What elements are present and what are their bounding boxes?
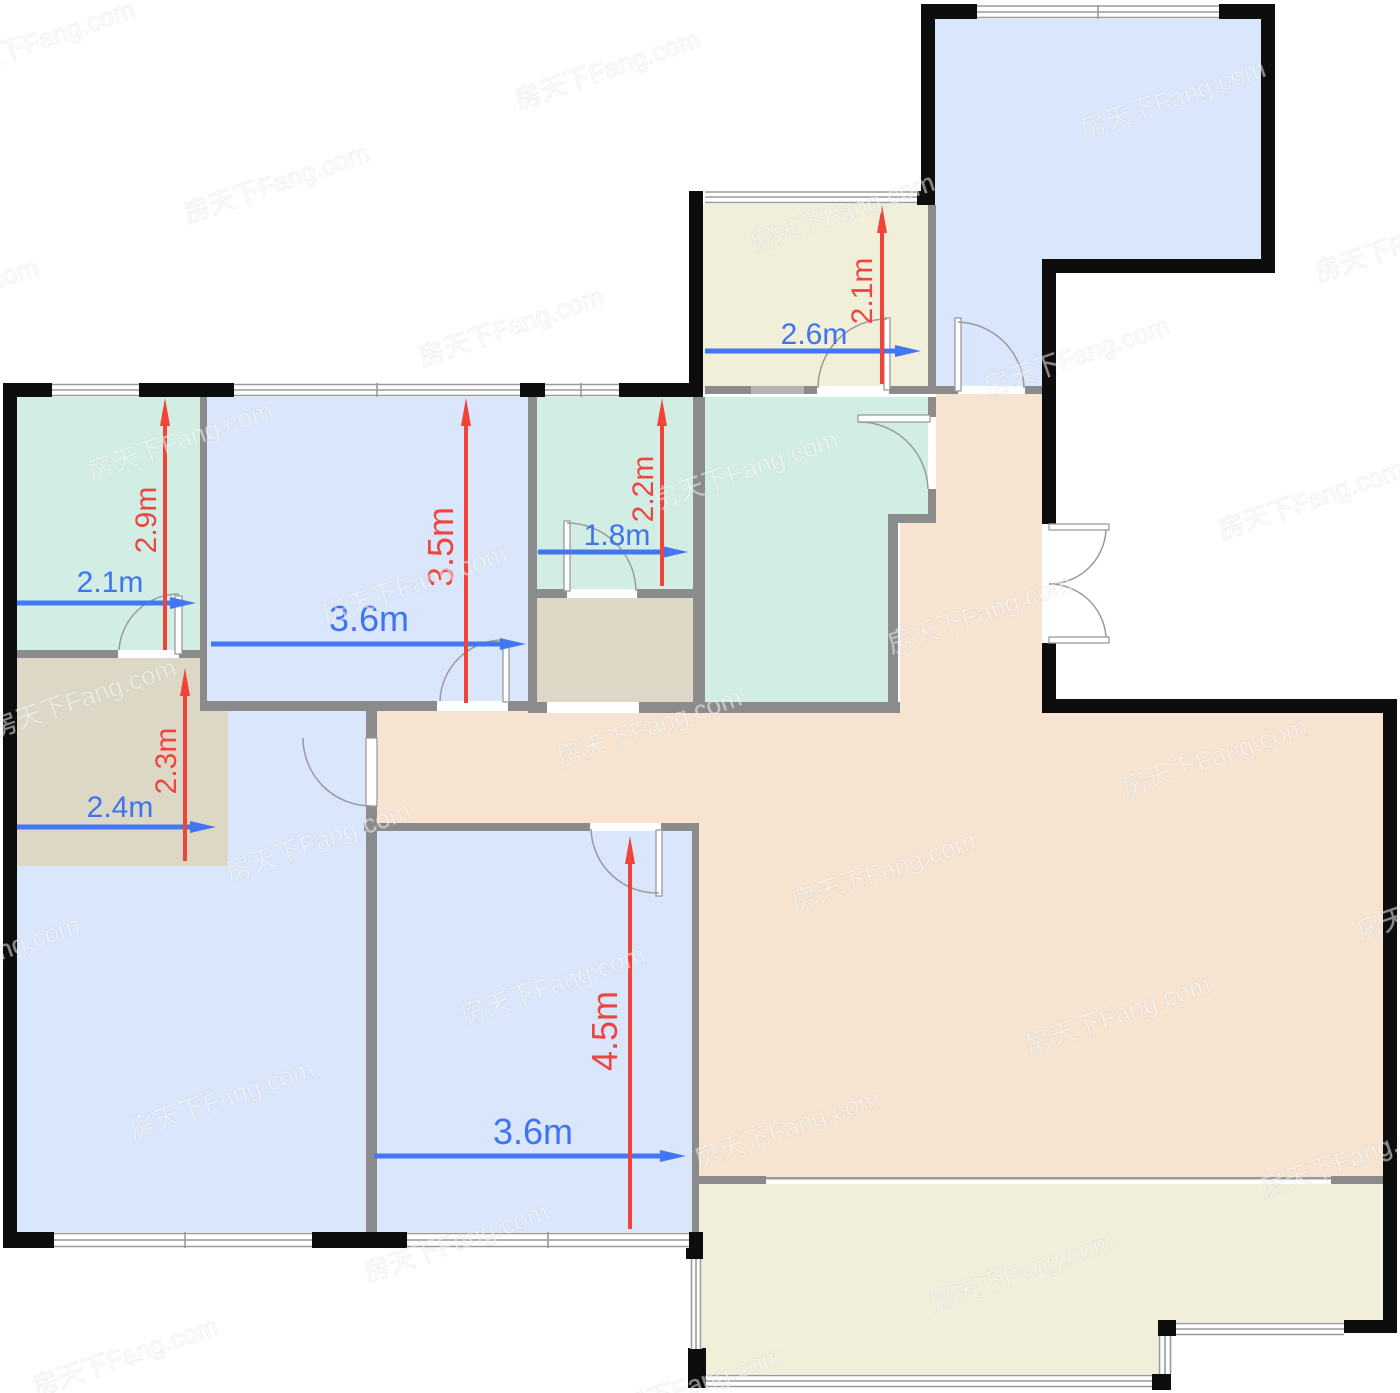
svg-text:3.6m: 3.6m — [493, 1111, 573, 1152]
svg-text:2.4m: 2.4m — [87, 791, 154, 824]
svg-text:2.3m: 2.3m — [150, 728, 183, 795]
svg-text:2.6m: 2.6m — [781, 318, 848, 351]
svg-text:1.8m: 1.8m — [584, 519, 651, 552]
svg-text:4.5m: 4.5m — [584, 991, 625, 1071]
svg-text:2.1m: 2.1m — [846, 258, 879, 325]
svg-text:2.1m: 2.1m — [77, 566, 144, 599]
svg-text:2.9m: 2.9m — [130, 487, 163, 554]
